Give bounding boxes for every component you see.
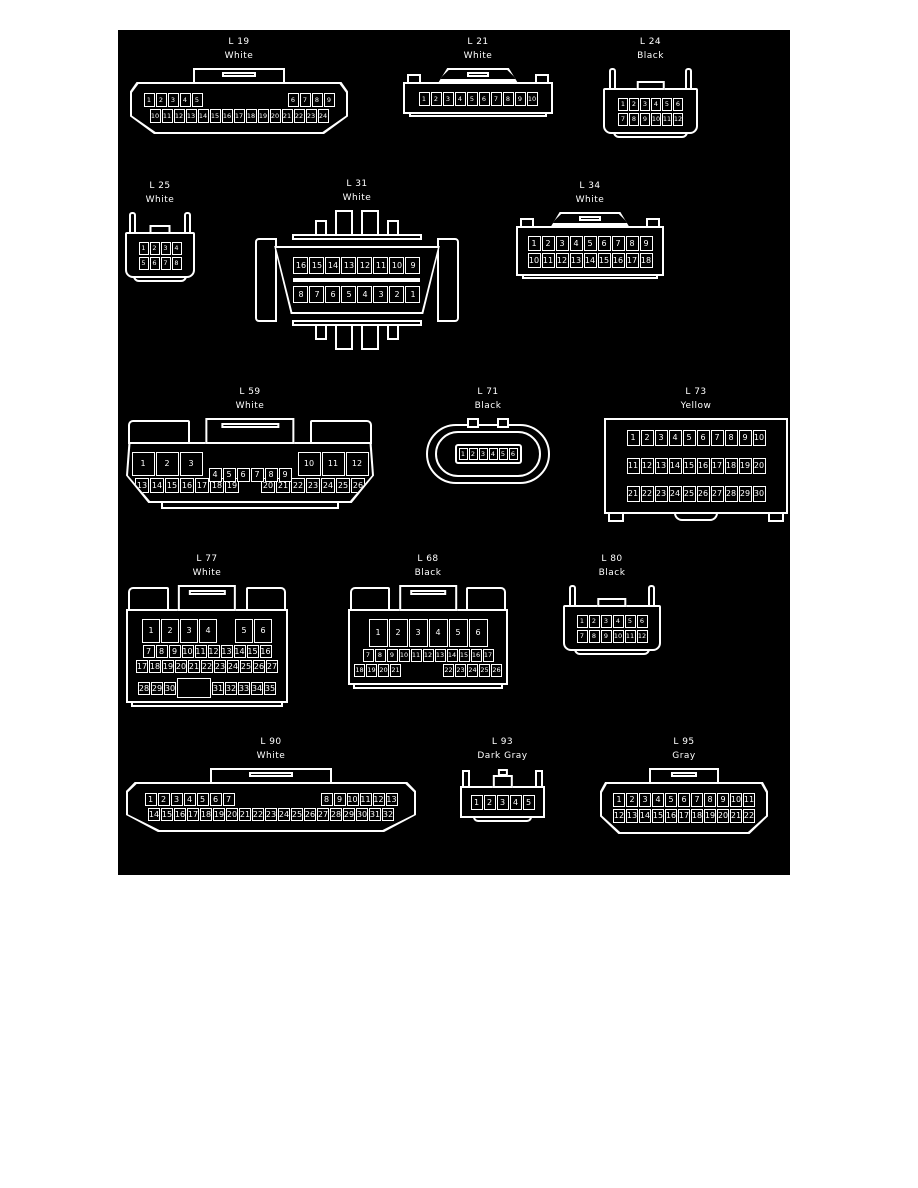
mount-tab-icon [335,210,353,236]
pin-cell: 19 [258,109,269,123]
connector-color: White [146,196,175,205]
pin-row: 87654321 [293,286,420,303]
pin-row: 789101112 [577,630,648,643]
pin-cell: 12 [346,452,369,476]
tab-row [600,768,768,784]
connector-body: 1234567891011121314151617181920212223242… [126,418,374,509]
pin-cell: 10 [399,649,410,662]
pin-gap [402,676,442,677]
pin-cell: 18 [200,808,212,821]
pin-cell: 16 [180,478,194,493]
pin-cell: 6 [288,93,299,107]
pin-cell: 10 [651,113,661,126]
connector-color: Black [637,52,664,61]
pin-cell: 27 [711,486,724,502]
shape-outline: 12345678 [125,232,195,278]
pin-row: 123456 [618,98,683,111]
small-crown-row [460,768,545,788]
mount-tab-icon [315,220,327,236]
pin-row: 78910111213141516 [143,645,272,658]
pin-cell: 2 [431,92,442,106]
pin-cell: 14 [447,649,458,662]
shape-fill: 1234567891011121314151617181920212223242… [128,784,414,830]
pin-cell: 1 [528,236,541,251]
pin-cell: 9 [169,645,181,658]
pin-cell: 11 [411,649,422,662]
mount-tab-icon [387,220,399,236]
shape-outline: 123456789101112131415161718192021222324 [130,82,348,134]
mount-tab-icon [361,210,379,236]
pin-grid: 1234567891011121314151617181920212223242… [627,430,766,502]
connector-l24: L 24Black123456789101112 [603,38,698,138]
connector-color: Yellow [681,402,712,411]
center-tab-icon [178,585,236,611]
pin-cell: 10 [528,253,541,268]
connector-id: L 21 [467,38,488,47]
pin-cell: 3 [443,92,454,106]
pin-cell: 26 [351,478,365,493]
connector-color: White [576,196,605,205]
pin-cell: 11 [627,458,640,474]
pin-cell: 4 [429,619,448,647]
pin-grid: 12345678910 [419,92,538,106]
pin-cell: 25 [336,478,350,493]
pin-cell: 6 [479,92,490,106]
pin-cell: 22 [201,660,213,673]
pin-row: 5678 [139,257,182,270]
pin-cell: 16 [222,109,233,123]
mount-tab-icon [387,324,399,340]
pin-cell: 7 [711,430,724,446]
center-tab-inner-icon [189,590,226,595]
pin-cell: 16 [665,809,677,823]
pin-cell: 15 [247,645,259,658]
connector-l93: L 93Dark Gray12345 [460,738,545,822]
pin-cell: 3 [639,793,651,807]
pin-cell: 2 [469,448,478,460]
pin-cell: 8 [503,92,514,106]
pin-gap [240,492,260,493]
oval-tab-row [467,418,509,428]
shape-outline [438,68,519,84]
prong-right-icon [184,212,191,234]
pin-cell: 26 [304,808,316,821]
pin-cell: 3 [479,448,488,460]
pin-cell: 12 [373,793,385,806]
pin-grid: 123456789101112131415161718 [528,236,653,268]
pin-cell: 32 [382,808,394,821]
oval-inner-ring: 123456 [435,431,541,477]
pin-cell: 22 [641,486,654,502]
connector-id: L 95 [673,738,694,747]
pin-cell: 3 [161,242,171,255]
tab-row [130,68,348,84]
pin-cell: 14 [148,808,160,821]
pin-row: 12345678910111213 [145,793,398,806]
shape-fill: 12345678910111213141516171819202122 [602,784,766,832]
pin-cell: 16 [471,649,482,662]
feet-row [604,514,788,522]
pin-cell: 19 [739,458,752,474]
pin-grid: 12345678 [139,242,182,270]
pin-row: 1213141516171819202122 [613,809,755,823]
connector-l90: L 90White1234567891011121314151617181920… [126,738,416,832]
pin-cell: 31 [212,682,224,695]
pin-cell: 2 [389,286,404,303]
shoulder-left-icon [128,587,169,611]
connector-id: L 68 [417,555,438,564]
pin-cell: 1 [419,92,430,106]
pin-row: 21222324252627282930 [627,486,766,502]
pin-cell: 3 [171,793,183,806]
shape-outline: 12345678910 [403,82,553,114]
pin-cell: 3 [373,286,388,303]
pin-cell: 9 [640,113,650,126]
pin-cell: 6 [237,468,250,482]
shape-fill: 16151413121110987654321 [276,248,438,312]
pin-cell: 15 [165,478,179,493]
connector-id: L 90 [260,738,281,747]
bottom-skirt [131,701,283,707]
pin-gap [293,475,297,476]
pin-grid: 16151413121110987654321 [293,257,420,303]
pin-cell: 6 [210,793,222,806]
pin-cell: 22 [743,809,755,823]
pin-cell: 11 [542,253,555,268]
mid-row: 16151413121110987654321 [248,238,466,322]
pin-cell: 20 [175,660,187,673]
pin-row: 123456 [577,615,648,628]
pin-row: 123456 [369,619,488,647]
shape-outline: 123456789101112131415161718 [516,226,664,276]
pin-cell: 15 [683,458,696,474]
pin-cell: 12 [637,630,648,643]
pin-cell: 1 [459,448,468,460]
pin-row: 123456 [142,619,272,643]
pin-cell: 5 [662,98,672,111]
wing-left-icon [255,238,277,322]
pin-row: 101112131415161718 [528,253,653,268]
pin-cell: 28 [138,682,150,695]
pin-cell: 9 [334,793,346,806]
pin-cell: 14 [669,458,682,474]
pin-cell: 23 [455,664,466,677]
connector-body: 123456 [426,418,550,484]
pin-row: 123456 [459,448,518,460]
pin-cell: 3 [556,236,569,251]
pin-cell: 24 [467,664,478,677]
pin-cell: 6 [637,615,648,628]
connector-body: 123456789101112 [603,68,698,138]
pin-cell: 3 [497,795,509,810]
pin-cell: 1 [142,619,160,643]
pin-cell: 5 [235,619,253,643]
pin-grid: 123456789101112131415161718192021222324 [144,93,335,123]
pin-row: 789101112 [618,113,683,126]
pin-cell: 22 [294,109,305,123]
pin-cell: 7 [300,93,311,107]
pin-gap [218,642,234,643]
pin-cell: 6 [673,98,683,111]
connector-body: 123456789101112131415161718 [516,212,664,279]
prong-left-icon [609,68,616,90]
center-bump-icon [150,225,171,234]
pin-row: 12345 [471,795,535,810]
pin-cell: 15 [210,109,221,123]
diagram-panel: L 19White1234567891011121314151617181920… [118,30,790,875]
pin-cell: 13 [570,253,583,268]
center-tab-inner-icon [221,423,279,428]
pin-cell: 4 [184,793,196,806]
pin-cell: 13 [386,793,398,806]
connector-color: Black [599,569,626,578]
connector-l71: L 71Black123456 [426,388,550,484]
pin-cell: 5 [139,257,149,270]
pin-cell: 2 [161,619,179,643]
pin-cell: 7 [491,92,502,106]
pin-cell: 5 [584,236,597,251]
pin-cell: 5 [523,795,535,810]
pin-cell: 21 [239,808,251,821]
pin-cell: 10 [753,430,766,446]
crown-inner-icon [579,216,601,221]
pin-cell: 1 [471,795,483,810]
pin-row: 7891011121314151617 [363,649,494,662]
pin-cell: 29 [151,682,163,695]
pin-cell: 18 [640,253,653,268]
center-bump-icon [636,81,665,90]
pin-cell: 10 [150,109,161,123]
pin-cell: 13 [655,458,668,474]
pin-cell: 19 [162,660,174,673]
prong-row [563,585,661,607]
pin-cell: 16 [174,808,186,821]
pin-cell: 5 [499,448,508,460]
pin-cell: 8 [375,649,386,662]
prong-left-icon [129,212,136,234]
pin-cell: 5 [625,615,636,628]
pin-cell: 15 [598,253,611,268]
pin-cell: 5 [467,92,478,106]
bottom-skirt [353,683,503,689]
pin-grid: 12345 [471,795,535,810]
tab-inner-icon [671,772,696,777]
bottom-skirt [473,816,533,822]
pin-cell: 13 [135,478,149,493]
pin-cell: 1 [577,615,588,628]
pin-cell: 17 [195,478,209,493]
shape-fill: 1234567891011121314151617181920212223242… [128,444,372,501]
pin-cell: 3 [168,93,179,107]
pin-cell: 15 [459,649,470,662]
prong-left-icon [569,585,576,607]
connector-color: White [343,194,372,203]
pin-cell: 8 [312,93,323,107]
pin-cell: 6 [325,286,340,303]
pin-cell: 7 [251,468,264,482]
tab-inner-icon [249,772,294,777]
pin-cell: 13 [626,809,638,823]
pin-cell: 20 [378,664,389,677]
pin-cell: 8 [321,793,333,806]
pin-cell: 12 [423,649,434,662]
connector-color: Dark Gray [477,752,527,761]
pin-cell: 11 [195,645,207,658]
pin-cell: 16 [293,257,308,274]
pin-cell: 4 [489,448,498,460]
bottom-tab-cluster [315,324,399,350]
pin-row: 1718192021222324252627 [136,660,278,673]
crown-row [516,212,664,228]
pin-cell: 1 [627,430,640,446]
pin-cell: 18 [246,109,257,123]
pin-cell: 20 [270,109,281,123]
pin-cell: 3 [655,430,668,446]
pin-cell: 19 [704,809,716,823]
pin-cell: 30 [164,682,176,695]
pin-cell: 10 [298,452,321,476]
pin-cell: 33 [238,682,250,695]
row-divider [293,278,420,282]
connector-color: White [464,52,493,61]
pin-row: 161514131211109 [293,257,420,274]
pin-cell: 21 [188,660,200,673]
prong-row [125,212,195,234]
connector-body: 12345678910 [403,68,553,117]
pin-cell: 10 [730,793,742,807]
crown-inner-icon [467,72,489,77]
pin-cell: 17 [711,458,724,474]
mount-tab-icon [335,324,353,350]
pin-cell: 5 [223,468,236,482]
top-tab-cluster [315,210,399,236]
bottom-skirt [522,274,658,279]
pin-cell: 3 [180,452,203,476]
connector-l80: L 80Black123456789101112 [563,555,661,655]
pin-cell: 23 [214,660,226,673]
pin-cell: 6 [678,793,690,807]
pin-cell: 13 [221,645,233,658]
connector-l68: L 68Black1234567891011121314151617181920… [348,555,508,689]
connector-body: 12345 [460,768,545,822]
pin-cell: 5 [683,430,696,446]
pin-cell: 16 [697,458,710,474]
pin-cell: 25 [683,486,696,502]
pin-gap [204,106,287,107]
shape-outline: 1234567891011121314151617181920212223242… [604,418,788,514]
pin-cell: 6 [598,236,611,251]
pin-cell: 18 [149,660,161,673]
pin-cell: 1 [132,452,155,476]
pin-cell: 5 [449,619,468,647]
page: L 19White1234567891011121314151617181920… [0,0,918,1188]
pin-cell: 4 [613,615,624,628]
pin-cell: 12 [673,113,683,126]
pin-cell: 4 [455,92,466,106]
pin-cell: 5 [192,93,203,107]
pin-cell: 2 [589,615,600,628]
pin-cell: 17 [678,809,690,823]
pin-grid: 123456789101112 [618,98,683,126]
pin-row: 123456789 [144,93,335,107]
oval-outer-ring: 123456 [426,424,550,484]
pin-cell: 11 [373,257,388,274]
prong-left-icon [462,770,470,788]
pin-cell: 1 [405,286,420,303]
connector-id: L 77 [196,555,217,564]
pin-cell: 7 [618,113,628,126]
pin-cell: 2 [156,93,167,107]
shape-outline: 123456789101112 [603,88,698,134]
pin-cell: 4 [180,93,191,107]
shape-outline [550,212,630,228]
pin-cell: 7 [363,649,374,662]
pin-cell: 24 [278,808,290,821]
connector-id: L 24 [640,38,661,47]
oval-tab-icon [467,418,479,428]
connector-l25: L 25White12345678 [125,182,195,282]
pin-cell: 1 [369,619,388,647]
pin-cell: 34 [251,682,263,695]
pin-cell: 8 [156,645,168,658]
pin-cell: 9 [324,93,335,107]
center-tab-icon [399,585,457,611]
connector-color: White [257,752,286,761]
pin-cell: 24 [318,109,329,123]
pin-cell: 12 [174,109,185,123]
pin-cell: 2 [156,452,179,476]
shape-outline: 1234567891011121314151617181920212223242… [126,442,374,503]
pin-cell: 9 [387,649,398,662]
shape-outline: 123456789101112 [563,605,661,651]
connector-color: White [225,52,254,61]
connector-color: Gray [672,752,696,761]
pin-cell: 16 [260,645,272,658]
bottom-skirt [133,276,188,282]
pin-cell: 12 [613,809,625,823]
pin-cell: 12 [641,458,654,474]
pin-cell: 10 [389,257,404,274]
pin-cell: 23 [265,808,277,821]
corner-block-right-icon [535,74,549,84]
pin-cell: 4 [172,242,182,255]
pin-cell: 29 [343,808,355,821]
connector-body: 1234567891011121314151617181920212223242… [126,768,416,832]
foot-left-icon [608,512,624,522]
shape-outline: 1234567891011121314151617181920212223242… [126,782,416,832]
pin-cell: 24 [321,478,335,493]
pin-row: 1234567891011 [613,793,755,807]
center-tab-icon [205,418,294,444]
pin-cell: 2 [641,430,654,446]
connector-body: 1234567891011121314151617181920212223242… [348,585,508,689]
pin-row: 181920212223242526 [354,664,502,677]
prong-right-icon [685,68,692,90]
pin-cell: 15 [652,809,664,823]
pin-cell: 8 [626,236,639,251]
pin-cell: 7 [223,793,235,806]
pin-cell: 28 [330,808,342,821]
shape-fill [440,70,517,79]
pin-cell: 16 [612,253,625,268]
pin-cell: 14 [198,109,209,123]
connector-id: L 25 [149,182,170,191]
pin-cell: 27 [266,660,278,673]
pin-cell: 6 [469,619,488,647]
pin-cell: 23 [655,486,668,502]
pin-row: 123456789 [528,236,653,251]
pin-cell: 17 [234,109,245,123]
